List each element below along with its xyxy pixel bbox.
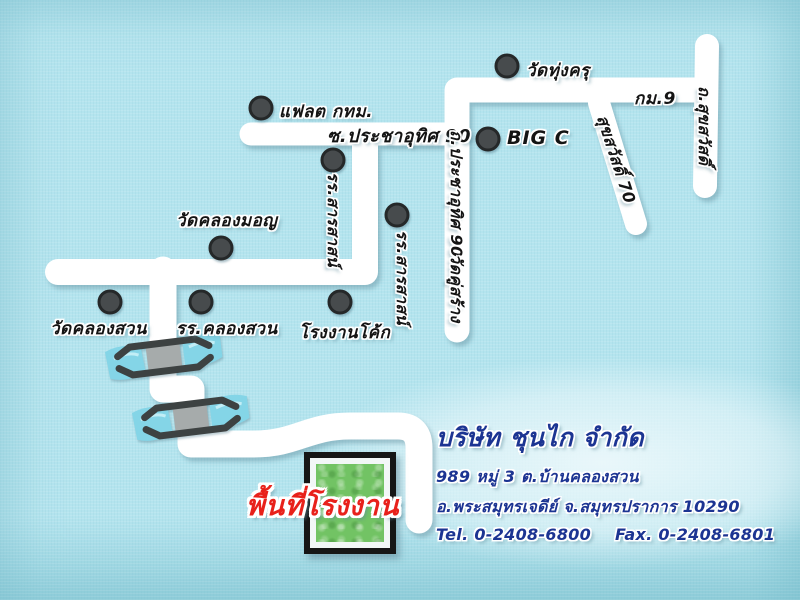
dot-coke-factory — [329, 291, 351, 313]
label-wat-thung-khru: วัดทุ่งครุ — [526, 57, 590, 84]
dot-khlong-suan-school — [190, 291, 212, 313]
label-th-suksawat: ถ.สุขสวัสดิ์ — [691, 86, 716, 165]
label-coke-factory: โรงงานโค้ก — [299, 319, 390, 346]
company-fax: Fax. 0-2408-6801 — [615, 525, 775, 544]
label-khlong-suan-school: รร.คลองสวน — [176, 315, 278, 342]
dot-wat-thung-khru — [496, 55, 518, 77]
dot-wat-khlong-mon — [210, 237, 232, 259]
road-top-and-pracha-uthit — [457, 90, 702, 330]
map-canvas: แฟลต กทม. วัดทุ่งครุ BIG C รร.สารสาสน์ ร… — [0, 0, 800, 600]
dot-wat-khlong-suan — [99, 291, 121, 313]
company-contact: Tel. 0-2408-6800 Fax. 0-2408-6801 — [436, 525, 793, 544]
dot-sarasas-west — [322, 149, 344, 171]
company-info: บริษัท ชุนไก จำกัด 989 หมู่ 3 ต.บ้านคลอง… — [436, 418, 793, 549]
company-address-line1: 989 หมู่ 3 ต.บ้านคลองสวน — [436, 465, 793, 490]
label-km-9: กม.9 — [634, 85, 676, 112]
label-big-c: BIG C — [507, 127, 570, 149]
dot-flat-bangkok — [250, 97, 272, 119]
label-wat-khlong-suan: วัดคลองสวน — [50, 315, 147, 342]
label-th-pracha-uthit-90: ถ.ประชาอุทิศ 90 — [443, 130, 468, 258]
label-sarasas-west: รร.สารสาสน์ — [320, 172, 345, 267]
dot-big-c — [477, 128, 499, 150]
label-wat-khu-sang: วัดคู่สร้าง — [443, 254, 468, 323]
label-sarasas-east: รร.สารสาสน์ — [389, 230, 414, 325]
factory-area-label: พื้นที่โรงงาน — [246, 484, 399, 528]
company-name: บริษัท ชุนไก จำกัด — [436, 418, 793, 458]
company-address-line2: อ.พระสมุทรเจดีย์ จ.สมุทรปราการ 10290 — [436, 495, 793, 520]
dot-sarasas-east — [386, 204, 408, 226]
label-wat-khlong-mon: วัดคลองมอญ — [176, 207, 277, 234]
company-tel: Tel. 0-2408-6800 — [436, 525, 591, 544]
